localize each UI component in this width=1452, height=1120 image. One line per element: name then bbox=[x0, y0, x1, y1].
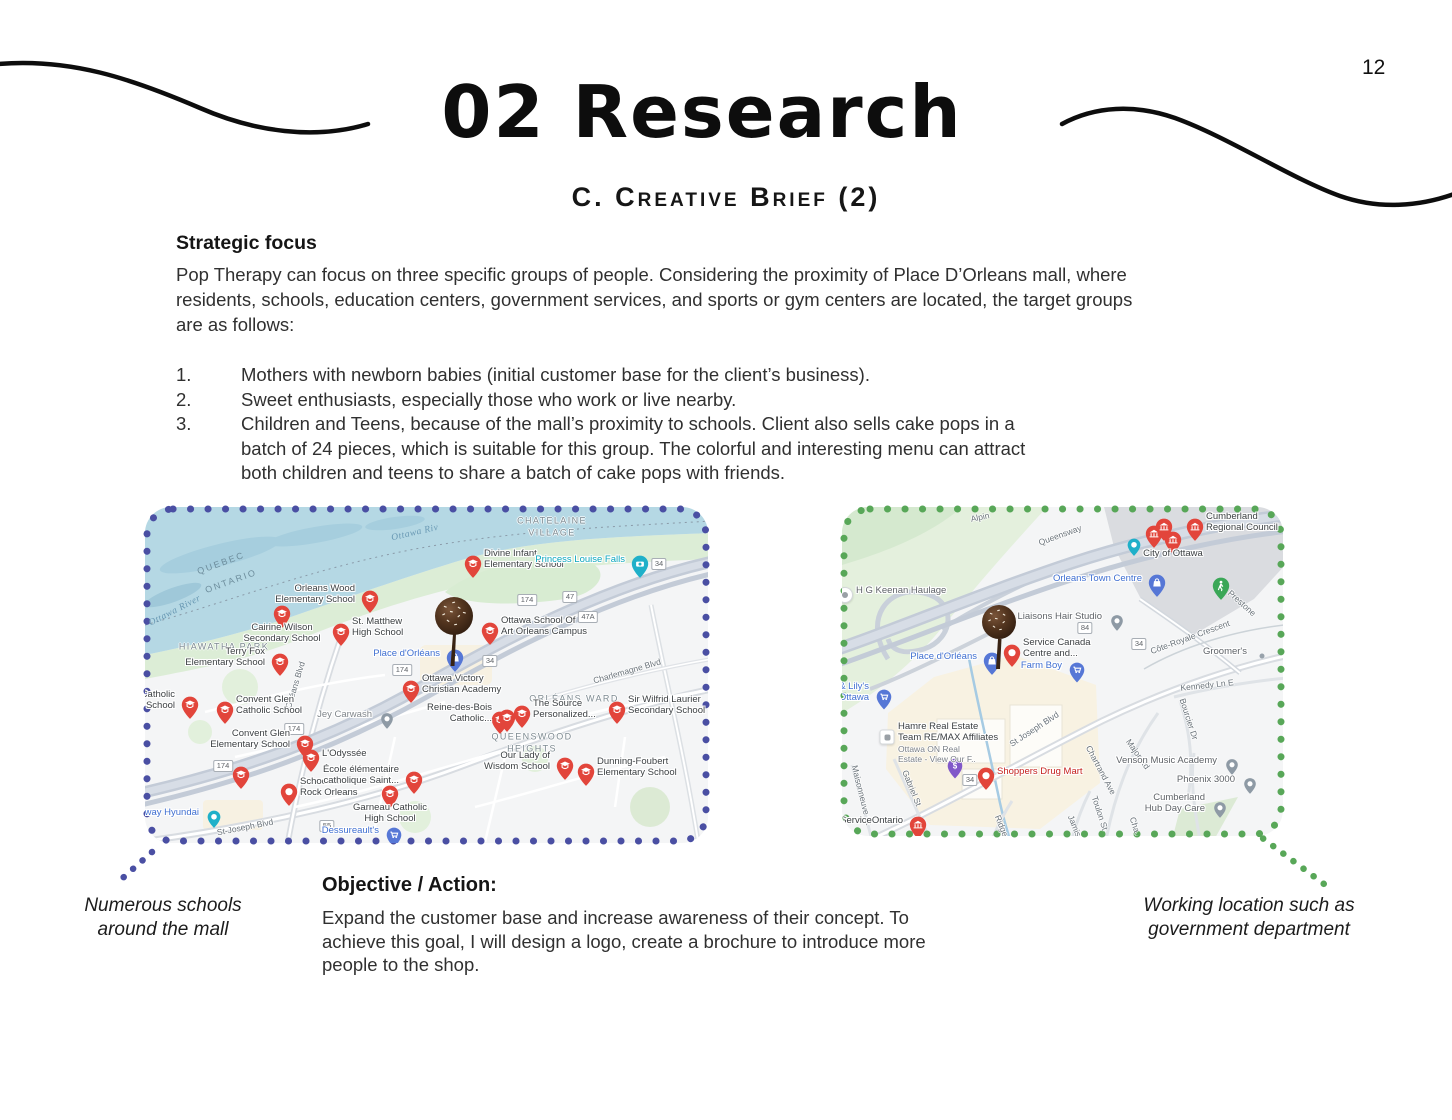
map-marker-school-icon bbox=[556, 757, 574, 781]
map-marker-bluecart-icon bbox=[1069, 662, 1085, 684]
map-poi-label: Ottawa School Of Art Orleans Campus bbox=[501, 615, 587, 637]
map-poi-label: Garneau Catholic High School bbox=[353, 802, 427, 824]
map-image: CHATELAINE VILLAGEHIAWATHA PARKORLÉANS W… bbox=[145, 507, 708, 843]
map-marker-gray-icon bbox=[1111, 615, 1124, 632]
map-poi-label: Princess Louise Falls bbox=[535, 554, 625, 565]
map-marker-whitesq-icon bbox=[880, 730, 895, 745]
list-item: 3. Children and Teens, because of the ma… bbox=[176, 412, 1176, 486]
map-street-label: Jamis... bbox=[1066, 814, 1086, 836]
map-water-label: Ottawa Riv bbox=[390, 523, 439, 544]
route-shield: 34 bbox=[1131, 638, 1146, 650]
map-marker-mallblue-icon bbox=[1148, 574, 1166, 598]
map-poi-label: Cumberland Regional Council bbox=[1206, 511, 1278, 533]
map-poi-label: H G Keenan Haulage bbox=[856, 585, 946, 596]
route-shield: 174 bbox=[392, 664, 412, 676]
map-poi-label: Ottawa Victory Christian Academy bbox=[422, 673, 501, 695]
map-poi-label: Reine-des-Bois Catholic... bbox=[427, 702, 492, 724]
map-marker-gov-icon bbox=[909, 816, 927, 836]
caption-schools: Numerous schools around the mall bbox=[38, 894, 288, 942]
map-marker-school-icon bbox=[608, 701, 626, 725]
map-poi-label: Groomer's bbox=[1203, 646, 1247, 657]
map-marker-school-icon bbox=[271, 653, 289, 677]
map-region-label: CHATELAINE VILLAGE bbox=[517, 516, 587, 539]
target-groups-list: 1. Mothers with newborn babies (initial … bbox=[176, 363, 1176, 486]
map-street-label: Charlemagne Blvd bbox=[592, 657, 662, 686]
map-marker-camera-icon bbox=[631, 555, 649, 579]
list-text: Children and Teens, because of the mall’… bbox=[241, 412, 1025, 486]
map-marker-tealdot-icon bbox=[207, 810, 221, 829]
map-street-label: Toulon St bbox=[1090, 795, 1110, 832]
map-marker-school-icon bbox=[577, 763, 595, 787]
map-marker-school-icon bbox=[402, 680, 420, 704]
map-poi-label: City of Ottawa bbox=[1143, 548, 1203, 559]
map-image: AlpinQueenswayPrestoneCôte-Royale Cresce… bbox=[842, 507, 1283, 836]
map-poi-label: École élémentaire catholique Saint... bbox=[323, 764, 399, 786]
map-marker-school-icon bbox=[302, 749, 320, 773]
map-street-label: Gabriel St bbox=[900, 769, 923, 808]
map-marker-school-icon bbox=[481, 622, 499, 646]
map-poi-label: Venson Music Academy bbox=[1116, 755, 1217, 766]
map-poi-label: St. Matthew High School bbox=[352, 616, 403, 638]
route-shield: 34 bbox=[482, 655, 497, 667]
strategic-focus-heading: Strategic focus bbox=[176, 232, 317, 255]
map-marker-school-icon bbox=[216, 701, 234, 725]
map-marker-school-icon bbox=[361, 590, 379, 614]
map-street-label: Ridge... bbox=[993, 814, 1013, 836]
route-shield: 84 bbox=[1077, 622, 1092, 634]
map-marker-greenped-icon bbox=[1212, 577, 1230, 601]
map-street-label: Alpin bbox=[970, 510, 991, 524]
map-marker-school-icon bbox=[232, 766, 250, 790]
map-street-label: Bourcier Dr bbox=[1178, 697, 1201, 741]
map-poi-label: Cumberland Hub Day Care bbox=[1145, 792, 1205, 814]
route-shield: 174 bbox=[213, 760, 233, 772]
map-marker-school-icon bbox=[332, 623, 350, 647]
map-poi-label: Convent Glen Catholic School bbox=[236, 694, 302, 716]
map-street-label: Prestone bbox=[1226, 588, 1258, 618]
section-title: 02 Research bbox=[0, 66, 1428, 158]
map-poi-label: Convent Glen Elementary School bbox=[210, 728, 290, 750]
list-number: 2. bbox=[176, 388, 241, 413]
map-marker-tiny-icon bbox=[1260, 654, 1265, 659]
map-street-label: Queensway bbox=[1037, 523, 1083, 548]
map-marker-gov-icon bbox=[1186, 518, 1204, 542]
route-shield: 47 bbox=[562, 591, 577, 603]
map-poi-label: ServiceOntario bbox=[842, 815, 903, 826]
list-text: Sweet enthusiasts, especially those who … bbox=[241, 388, 736, 413]
map-marker-school-icon bbox=[181, 696, 199, 720]
map-marker-bluecart-icon bbox=[386, 827, 402, 843]
map-marker-gray-icon bbox=[1214, 802, 1227, 819]
map-street-label: St-Joseph Blvd bbox=[216, 817, 274, 838]
caption-government: Working location such as government depa… bbox=[1118, 894, 1380, 942]
route-shield: 174 bbox=[517, 594, 537, 606]
map-poi-label: Orleans Town Centre bbox=[1053, 573, 1142, 584]
map-marker-tealdot-icon bbox=[1127, 538, 1141, 557]
cake-pop-marker bbox=[430, 594, 478, 670]
map-water-label: Ottawa River bbox=[147, 594, 202, 629]
map-marker-gray-icon bbox=[381, 713, 394, 730]
strategic-focus-paragraph: Pop Therapy can focus on three specific … bbox=[176, 262, 1296, 337]
objective-heading: Objective / Action: bbox=[322, 874, 497, 897]
map-poi-label: Place d'Orléans bbox=[910, 651, 977, 662]
map-street-label: Chartrand Ave bbox=[1084, 744, 1118, 797]
map-schools-around-mall: CHATELAINE VILLAGEHIAWATHA PARKORLÉANS W… bbox=[143, 505, 710, 845]
map-poi-label: Dunning-Foubert Elementary School bbox=[597, 756, 677, 778]
map-poi-label: Jey Carwash bbox=[317, 709, 372, 720]
map-street-label: St Joseph Blvd bbox=[1007, 709, 1060, 748]
map-marker-school-icon bbox=[513, 705, 531, 729]
dot-trail-right bbox=[1253, 831, 1324, 884]
map-poi-label: Hamre Real Estate Team RE/MAX Affiliates bbox=[898, 721, 998, 743]
map-marker-bluecart-icon bbox=[876, 689, 892, 711]
map-poi-label: hway Hyundai bbox=[145, 807, 199, 818]
map-marker-whitecircle-icon bbox=[842, 587, 853, 603]
map-marker-school-icon bbox=[405, 771, 423, 795]
list-item: 1. Mothers with newborn babies (initial … bbox=[176, 363, 1176, 388]
map-poi-label: Sir Wilfrid Laurier Secondary School bbox=[628, 694, 705, 716]
map-poi-label: Our Lady of Wisdom School bbox=[484, 750, 550, 772]
map-government-locations: AlpinQueenswayPrestoneCôte-Royale Cresce… bbox=[840, 505, 1285, 838]
page-subtitle: C. Creative Brief (2) bbox=[0, 182, 1452, 213]
map-poi-label: Service Canada Centre and... bbox=[1023, 637, 1091, 659]
map-street-label: Kennedy Ln E bbox=[1180, 677, 1234, 693]
map-poi-label: Cairine Wilson Secondary School bbox=[243, 622, 320, 644]
map-poi-label: Terry Fox Elementary School bbox=[185, 646, 265, 668]
map-poi-label: Dessureault's bbox=[322, 825, 379, 836]
map-poi-label: Farm Boy bbox=[1021, 660, 1062, 671]
objective-paragraph: Expand the customer base and increase aw… bbox=[322, 906, 1042, 977]
map-poi-label: Phoenix 3000 bbox=[1177, 774, 1235, 785]
map-poi-label: Shoppers Drug Mart bbox=[997, 766, 1083, 777]
list-item: 2. Sweet enthusiasts, especially those w… bbox=[176, 388, 1176, 413]
route-shield: 34 bbox=[651, 558, 666, 570]
document-page: 12 02 Research C. Creative Brief (2) Str… bbox=[0, 0, 1452, 1120]
map-poi-label: Liaisons Hair Studio bbox=[1018, 611, 1103, 622]
map-poi-label: L'Odyssée bbox=[322, 748, 367, 759]
list-text: Mothers with newborn babies (initial cus… bbox=[241, 363, 870, 388]
map-poi-label: Catholic y School bbox=[145, 689, 175, 711]
map-marker-school-icon bbox=[464, 555, 482, 579]
map-marker-gray-icon bbox=[1244, 778, 1257, 795]
cake-pop-marker bbox=[977, 603, 1021, 673]
dot-trail-left bbox=[116, 852, 152, 884]
map-marker-red-icon bbox=[280, 783, 298, 807]
poi-layer: AlpinQueenswayPrestoneCôte-Royale Cresce… bbox=[842, 507, 1283, 836]
map-poi-label: The Source Personalized... bbox=[533, 698, 596, 720]
map-poi-label: Orleans Wood Elementary School bbox=[275, 583, 355, 605]
map-street-label: Cha... bbox=[1128, 816, 1145, 836]
route-shield: 34 bbox=[962, 774, 977, 786]
map-poi-sublabel: Ottawa ON Real Estate - View Our F.. bbox=[898, 744, 976, 764]
poi-layer: CHATELAINE VILLAGEHIAWATHA PARKORLÉANS W… bbox=[145, 507, 708, 843]
list-number: 3. bbox=[176, 412, 241, 486]
map-poi-label: e & Lily's S Ottawa bbox=[842, 681, 869, 703]
map-marker-red-icon bbox=[977, 767, 995, 791]
list-number: 1. bbox=[176, 363, 241, 388]
